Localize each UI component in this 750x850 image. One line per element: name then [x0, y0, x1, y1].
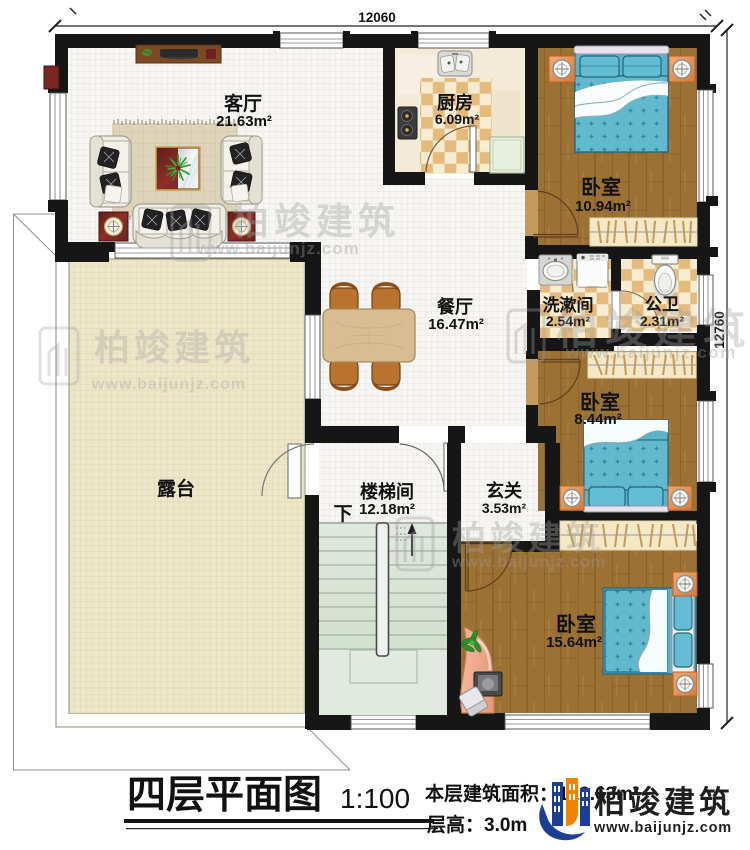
svg-text:3.53m²: 3.53m² — [482, 500, 527, 516]
svg-text:楼梯间: 楼梯间 — [360, 481, 414, 502]
svg-text:21.63m²: 21.63m² — [216, 113, 272, 130]
svg-text:12060: 12060 — [358, 10, 396, 25]
svg-text:卧室: 卧室 — [556, 612, 596, 636]
svg-text:15.64m²: 15.64m² — [546, 634, 602, 651]
svg-text:www.baijunjz.com: www.baijunjz.com — [91, 376, 246, 393]
svg-text:12.18m²: 12.18m² — [359, 501, 415, 518]
svg-text:层高：3.0m: 层高：3.0m — [427, 813, 527, 836]
svg-text:餐厅: 餐厅 — [436, 296, 473, 317]
svg-text:16.47m²: 16.47m² — [428, 316, 484, 333]
svg-text:柏竣建筑: 柏竣建筑 — [232, 200, 400, 242]
svg-text:www.baijunjz.com: www.baijunjz.com — [565, 343, 737, 362]
svg-text:厨房: 厨房 — [437, 92, 473, 113]
svg-text:柏竣建筑: 柏竣建筑 — [594, 785, 734, 820]
svg-text:1:100: 1:100 — [340, 783, 410, 814]
svg-text:露台: 露台 — [157, 477, 195, 500]
svg-text:柏竣建筑: 柏竣建筑 — [94, 327, 254, 368]
svg-text:10.94m²: 10.94m² — [575, 198, 631, 215]
svg-text:卧室: 卧室 — [581, 175, 621, 199]
svg-text:www.baijunjz.com: www.baijunjz.com — [196, 239, 360, 258]
svg-text:玄关: 玄关 — [486, 480, 522, 501]
svg-text:www.baijunjz.com: www.baijunjz.com — [451, 554, 606, 571]
svg-text:四层平面图: 四层平面图 — [127, 774, 322, 817]
svg-text:客厅: 客厅 — [224, 92, 262, 115]
svg-text:下: 下 — [333, 504, 352, 525]
svg-text:柏竣建筑: 柏竣建筑 — [452, 519, 604, 558]
svg-text:www.baijunjz.com: www.baijunjz.com — [593, 820, 732, 836]
svg-text:6.09m²: 6.09m² — [435, 111, 480, 127]
svg-text:8.44m²: 8.44m² — [574, 411, 622, 428]
